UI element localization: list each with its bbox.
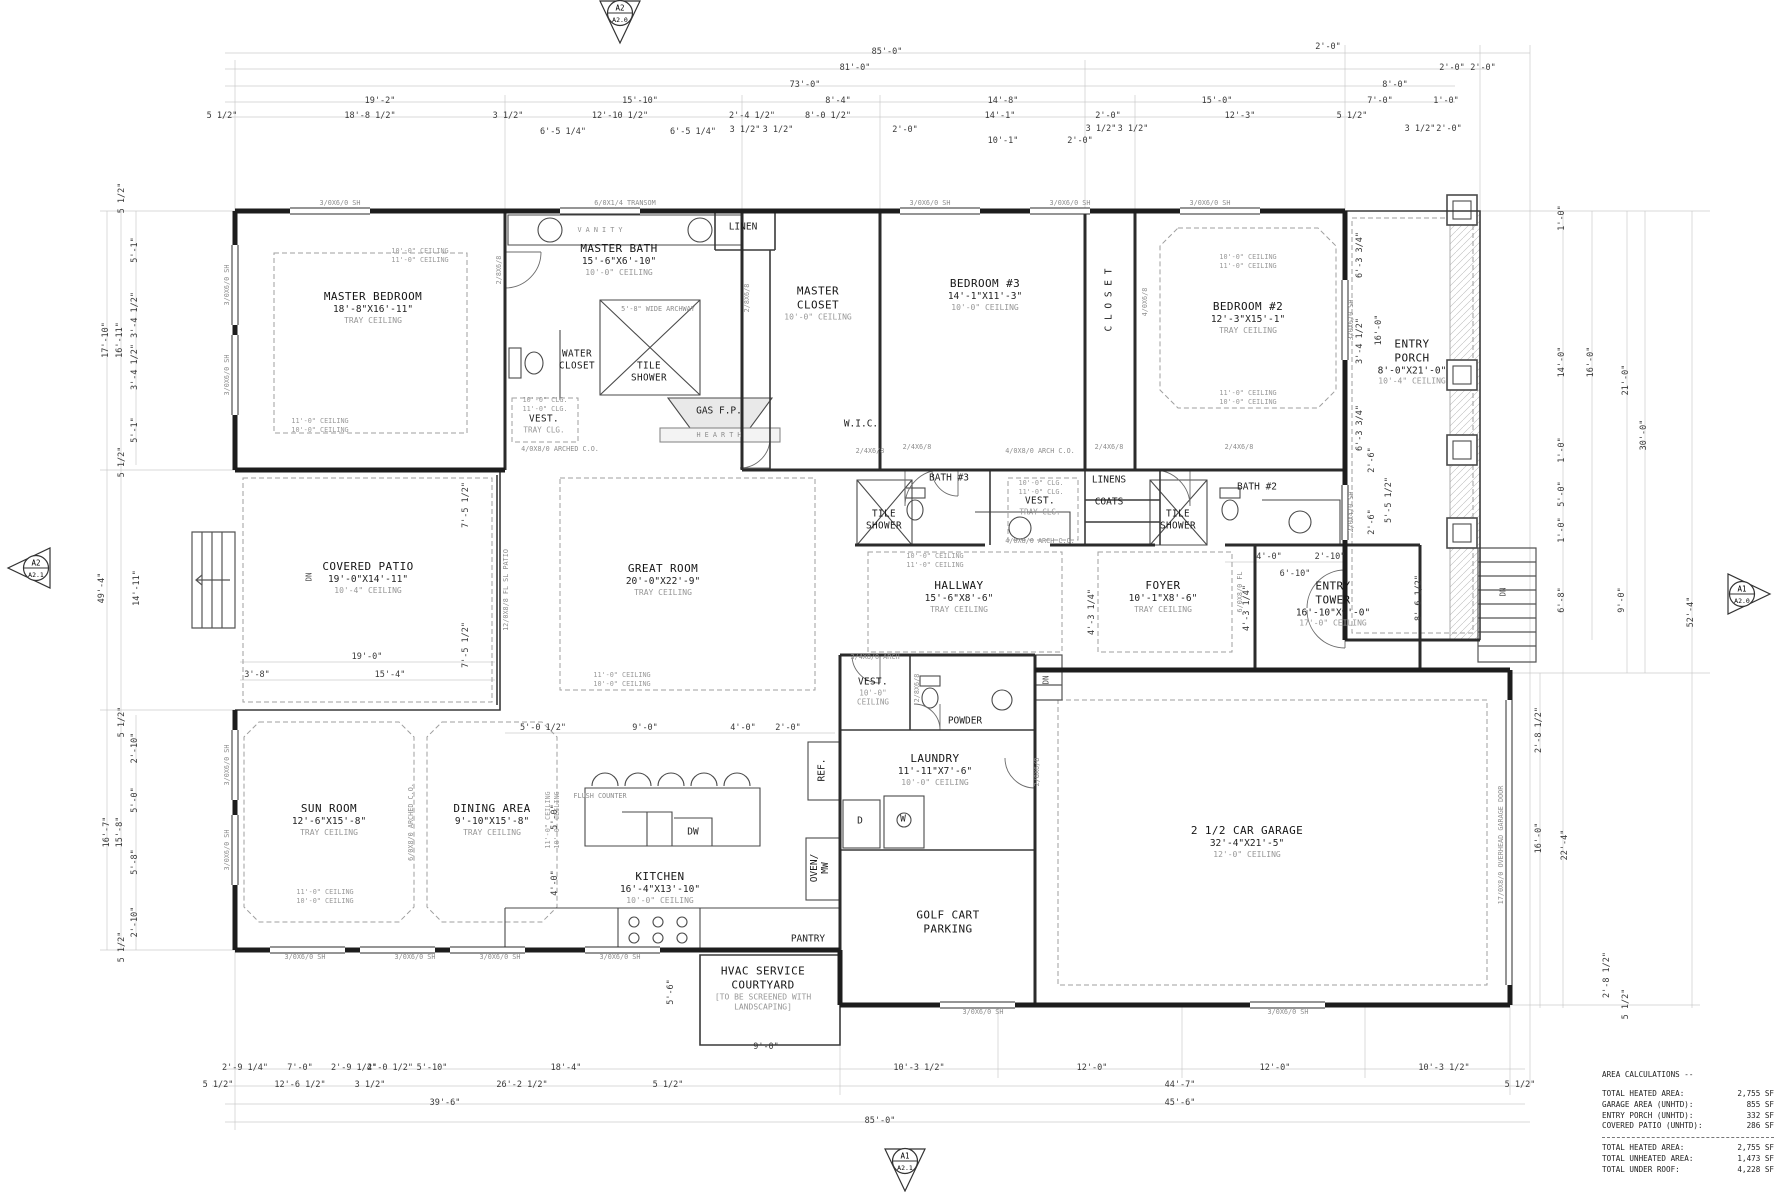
area-table-row-value: 4,228 SF bbox=[1737, 1165, 1774, 1176]
dimension-label: 2'-8 1/2" bbox=[1535, 707, 1545, 753]
window-door-annotation: 2/4X6/8 bbox=[903, 444, 932, 452]
room-label: ENTRYTOWER16'-10"X9'-0"17'-0" CEILING bbox=[1296, 579, 1370, 628]
dimension-label: 2'-0 1/2" bbox=[367, 1064, 413, 1074]
dimension-label: 8'-4" bbox=[825, 97, 851, 107]
dimension-label: 2'-4 1/2" bbox=[729, 112, 775, 122]
room-label: MASTER BEDROOM18'-8"X16'-11"TRAY CEILING bbox=[324, 290, 422, 326]
plan-label: H E A R T H bbox=[696, 432, 741, 440]
ceiling-height-note: 10'-0" CLG. 11'-0" CLG. bbox=[522, 396, 567, 414]
window-door-annotation: 17/0X8/0 OVERHEAD GARAGE DOOR bbox=[1498, 786, 1506, 905]
area-table-group2: TOTAL HEATED AREA:2,755 SFTOTAL UNHEATED… bbox=[1602, 1143, 1774, 1175]
dimension-label: 5 1/2" bbox=[118, 707, 128, 738]
dimension-label: 8'-0 1/2" bbox=[805, 112, 851, 122]
plan-label: FLUSH COUNTER bbox=[573, 793, 626, 801]
dimension-label: 12'-3" bbox=[1225, 112, 1256, 122]
area-table-row-label: TOTAL HEATED AREA: bbox=[1602, 1089, 1684, 1100]
window-door-annotation: 3/0X6/0 SH bbox=[963, 1009, 1004, 1017]
dimension-label: 81'-0" bbox=[840, 64, 871, 74]
dimension-label: 18'-8 1/2" bbox=[344, 112, 395, 122]
dimension-label: 4'-3 1/4" bbox=[1088, 589, 1098, 635]
dimension-label: 3 1/2" bbox=[355, 1081, 386, 1091]
plan-label: C L O S E T bbox=[1105, 269, 1116, 332]
plan-label: BATH #2 bbox=[1237, 483, 1277, 494]
area-table-row-label: COVERED PATIO (UNHTD): bbox=[1602, 1121, 1703, 1132]
dimension-label: 2'-6" bbox=[1368, 447, 1378, 473]
window-door-annotation: 2/8X6/8 bbox=[914, 674, 922, 703]
sheet-reference-marker: A2A2.1 bbox=[5, 542, 55, 598]
dimension-label: 12'-0" bbox=[1260, 1064, 1291, 1074]
window-door-annotation: 3/0X6/0 SH bbox=[224, 355, 232, 396]
ceiling-height-note: 10'-0" CEILING 11'-0" CEILING bbox=[1219, 253, 1276, 271]
plan-label: COATS bbox=[1095, 498, 1124, 509]
dimension-label: 2'-0" bbox=[1095, 112, 1121, 122]
dimension-label: 8'-0" bbox=[1382, 81, 1408, 91]
window-door-annotation: 3/0X6/0 SH bbox=[1348, 300, 1356, 341]
dimension-label: 19'-2" bbox=[365, 97, 396, 107]
plan-label: BATH #3 bbox=[929, 474, 969, 485]
dimension-label: 3'-4 1/2" bbox=[131, 292, 141, 338]
dimension-label: 85'-0" bbox=[872, 48, 903, 58]
room-label: TILESHOWER bbox=[631, 360, 667, 383]
dimension-label: 19'-0" bbox=[352, 653, 383, 663]
room-label: 2 1/2 CAR GARAGE32'-4"X21'-5"12'-0" CEIL… bbox=[1191, 824, 1303, 860]
dimension-label: 10'-1" bbox=[988, 137, 1019, 147]
porch-hatch-band bbox=[1450, 211, 1480, 640]
dimension-label: 5'-0" bbox=[1558, 481, 1568, 507]
dimension-label: 30'-0" bbox=[1640, 420, 1650, 451]
dimension-label: 9'-0" bbox=[632, 724, 658, 734]
svg-text:A2.1: A2.1 bbox=[28, 571, 44, 579]
svg-text:A1: A1 bbox=[900, 1152, 909, 1161]
dimension-label: 5'-5 1/2" bbox=[1385, 477, 1395, 523]
dimension-label: 1'-0" bbox=[1433, 97, 1459, 107]
dimension-label: 12'-0" bbox=[1077, 1064, 1108, 1074]
dimension-label: 85'-0" bbox=[865, 1117, 896, 1127]
area-table-row-label: GARAGE AREA (UNHTD): bbox=[1602, 1100, 1693, 1111]
dimension-label: 2'-8 1/2" bbox=[1603, 952, 1613, 998]
window-door-annotation: 3/0X6/0 SH bbox=[600, 954, 641, 962]
plan-label: D bbox=[857, 817, 863, 828]
room-label: VEST.TRAY CLG. bbox=[523, 413, 564, 434]
area-table-row-value: 855 SF bbox=[1747, 1100, 1774, 1111]
area-table-row: TOTAL UNDER ROOF:4,228 SF bbox=[1602, 1165, 1774, 1176]
room-label: VEST.TRAY CLG. bbox=[1019, 495, 1060, 516]
plan-label: POWDER bbox=[948, 717, 982, 728]
window-door-annotation: 2/4X6/8 bbox=[1225, 444, 1254, 452]
window-door-annotation: 3/0X6/0 SH bbox=[320, 200, 361, 208]
dimension-label: 2'-0" bbox=[1436, 125, 1462, 135]
area-table-row-label: ENTRY PORCH (UNHTD): bbox=[1602, 1111, 1693, 1122]
dimension-label: 2'-0" bbox=[1439, 64, 1465, 74]
ceiling-height-note: 10'-0" CLG. 11'-0" CLG. bbox=[1018, 479, 1063, 497]
dimension-label: 8'-6 1/2" bbox=[1415, 575, 1425, 621]
dimension-label: 3'-4 1/2" bbox=[1356, 318, 1366, 364]
plan-label: DN bbox=[306, 572, 315, 581]
window-door-annotation: 4/0X8/0 ARCH C.O. bbox=[1005, 538, 1075, 546]
plan-label: OVEN/ MW bbox=[810, 854, 832, 883]
dimension-label: 16'-11" bbox=[116, 322, 126, 358]
dimension-label: 1'-0" bbox=[1558, 517, 1568, 543]
room-label: BEDROOM #314'-1"X11'-3"10'-0" CEILING bbox=[948, 277, 1022, 313]
dimension-label: 7'-5 1/2" bbox=[462, 622, 472, 668]
dimension-label: 3 1/2" bbox=[730, 126, 761, 136]
plan-label: GAS F.P. bbox=[696, 407, 742, 418]
window-door-annotation: 3/0X6/0 SH bbox=[1268, 1009, 1309, 1017]
dimension-label: 2'-10" bbox=[1315, 553, 1346, 563]
window-door-annotation: 4/0X8/0 ARCH C.O. bbox=[1005, 448, 1075, 456]
dimension-label: 1'-0" bbox=[1558, 205, 1568, 231]
dimension-label: 10'-3 1/2" bbox=[1418, 1064, 1469, 1074]
room-label: HALLWAY15'-6"X8'-6"TRAY CEILING bbox=[925, 579, 994, 615]
dimension-label: 17'-10" bbox=[102, 322, 112, 358]
dimension-label: 6'-5 1/4" bbox=[670, 128, 716, 138]
room-label: VEST.10'-0"CEILING bbox=[857, 677, 889, 708]
area-table-group1: TOTAL HEATED AREA:2,755 SFGARAGE AREA (U… bbox=[1602, 1089, 1774, 1132]
dimension-label: 2'-0" bbox=[1315, 43, 1341, 53]
dimension-label: 6'-3 3/4" bbox=[1356, 232, 1366, 278]
dimension-label: 6'-8" bbox=[1558, 587, 1568, 613]
area-table-row-value: 332 SF bbox=[1747, 1111, 1774, 1122]
area-table-row-value: 1,473 SF bbox=[1737, 1154, 1774, 1165]
svg-text:A2.0: A2.0 bbox=[612, 16, 628, 24]
dimension-label: 5'-0" bbox=[131, 787, 141, 813]
dimension-label: 73'-0" bbox=[790, 81, 821, 91]
plan-label: LINEN bbox=[729, 223, 758, 234]
plan-label: REF. bbox=[818, 759, 829, 782]
dimension-label: 2'-6" bbox=[1368, 509, 1378, 535]
room-label: KITCHEN16'-4"X13'-10"10'-0" CEILING bbox=[620, 870, 700, 906]
dimension-label: 5 1/2" bbox=[207, 112, 238, 122]
plan-label: PANTRY bbox=[791, 935, 825, 946]
plan-label: DW bbox=[687, 828, 698, 839]
dimension-label: 44'-7" bbox=[1165, 1081, 1196, 1091]
area-table-row: TOTAL HEATED AREA:2,755 SF bbox=[1602, 1143, 1774, 1154]
dimension-label: 3 1/2" bbox=[1118, 125, 1149, 135]
room-label: TILESHOWER bbox=[866, 508, 902, 531]
dimension-label: 14'-8" bbox=[988, 97, 1019, 107]
dimension-label: 16'-7" bbox=[103, 817, 113, 848]
dimension-label: 22'-4" bbox=[1561, 830, 1571, 861]
dimension-label: 3 1/2" bbox=[1086, 125, 1117, 135]
window-door-annotation: 6/0X1/4 TRANSOM bbox=[594, 200, 655, 208]
room-label: BEDROOM #212'-3"X15'-1"TRAY CEILING bbox=[1211, 300, 1285, 336]
dimension-label: 2'-0" bbox=[892, 126, 918, 136]
window-door-annotation: 3/0X6/0 SH bbox=[224, 265, 232, 306]
dimension-label: 2'-10" bbox=[131, 733, 141, 764]
dimension-label: 16'-0" bbox=[1587, 347, 1597, 378]
window-door-annotation: 2/0X4/0 SH bbox=[1348, 492, 1356, 533]
dimension-label: 5'-0 1/2" bbox=[520, 724, 566, 734]
dimension-label: 45'-6" bbox=[1165, 1099, 1196, 1109]
area-table-row: COVERED PATIO (UNHTD):286 SF bbox=[1602, 1121, 1774, 1132]
room-label: GREAT ROOM20'-0"X22'-9"TRAY CEILING bbox=[626, 562, 700, 598]
dimension-label: 15'-4" bbox=[375, 671, 406, 681]
dimension-label: 5'-1" bbox=[131, 417, 141, 443]
dimension-label: 7'-5 1/2" bbox=[462, 482, 472, 528]
window-door-annotation: 3/0X6/0 SH bbox=[224, 745, 232, 786]
area-table-divider bbox=[1602, 1137, 1774, 1138]
dimension-label: 15'-0" bbox=[1202, 97, 1233, 107]
ceiling-height-note: 11'-0" CEILING 10'-0" CEILING bbox=[1219, 389, 1276, 407]
ceiling-height-note: 11'-0" CEILING 10'-0" CEILING bbox=[291, 417, 348, 435]
room-label: MASTER BATH15'-6"X6'-10"10'-0" CEILING bbox=[580, 242, 657, 278]
plan-label: W bbox=[900, 815, 906, 826]
dimension-label: 7'-0" bbox=[1367, 97, 1393, 107]
dimension-label: 5'-6" bbox=[667, 979, 677, 1005]
sheet-reference-marker: A2A2.0 bbox=[595, 0, 645, 52]
area-table-row: TOTAL UNHEATED AREA:1,473 SF bbox=[1602, 1154, 1774, 1165]
dimension-label: 12'-6 1/2" bbox=[274, 1081, 325, 1091]
dimension-label: 2'-10" bbox=[131, 907, 141, 938]
svg-text:A2.1: A2.1 bbox=[897, 1164, 913, 1172]
dimension-label: 5 1/2" bbox=[1622, 989, 1632, 1020]
walls-thin bbox=[235, 211, 1480, 1045]
dimension-label: 3 1/2" bbox=[493, 112, 524, 122]
svg-text:A2.0: A2.0 bbox=[1734, 597, 1750, 605]
area-table-row-label: TOTAL HEATED AREA: bbox=[1602, 1143, 1684, 1154]
sheet-reference-marker: A1A2.0 bbox=[1723, 568, 1773, 624]
dimension-label: 5 1/2" bbox=[653, 1081, 684, 1091]
dimension-label: 49'-4" bbox=[98, 573, 108, 604]
dimension-label: 4'-0" bbox=[551, 870, 561, 896]
area-table-row: TOTAL HEATED AREA:2,755 SF bbox=[1602, 1089, 1774, 1100]
dimension-label: 52'-4" bbox=[1687, 597, 1697, 628]
window-door-annotation: 3/0X6/0 SH bbox=[395, 954, 436, 962]
dimension-label: 10'-3 1/2" bbox=[893, 1064, 944, 1074]
floor-plan-drawing bbox=[0, 0, 1777, 1192]
dimension-label: 4'-0" bbox=[730, 724, 756, 734]
ceiling-height-note: 11'-0" CEILING 10'-0" CEILING bbox=[296, 888, 353, 906]
window-door-annotation: 2/4X6/8 bbox=[1095, 444, 1124, 452]
dimension-label: 2'-9 1/4" bbox=[222, 1064, 268, 1074]
dimension-label: 3 1/2" bbox=[763, 126, 794, 136]
window-door-annotation: 4/0X8/0 ARCHED C.O. bbox=[521, 446, 599, 454]
dimension-label: 15'-10" bbox=[622, 97, 658, 107]
dimension-label: 6'-3 3/4" bbox=[1356, 405, 1366, 451]
window-door-annotation: 3/4X8/0 ARCH bbox=[850, 654, 899, 662]
dimension-label: 2'-0" bbox=[775, 724, 801, 734]
dimension-label: 5'-10" bbox=[417, 1064, 448, 1074]
window-door-annotation: 6/0X8/0 FL bbox=[1237, 572, 1245, 613]
area-table-row-label: TOTAL UNDER ROOF: bbox=[1602, 1165, 1680, 1176]
window-door-annotation: 2/8X6/8 bbox=[1034, 758, 1042, 787]
svg-text:A1: A1 bbox=[1737, 585, 1746, 594]
dimension-label: 3 1/2" bbox=[1405, 125, 1436, 135]
dimension-label: 12'-10 1/2" bbox=[592, 112, 648, 122]
room-label: HVAC SERVICECOURTYARD[TO BE SCREENED WIT… bbox=[715, 964, 811, 1012]
plan-label: W.I.C. bbox=[844, 420, 878, 431]
window-door-annotation: 3/0X6/0 SH bbox=[224, 830, 232, 871]
dimension-label: 2'-0" bbox=[1067, 137, 1093, 147]
dimension-label: 16'-0" bbox=[1535, 823, 1545, 854]
window-door-annotation: 3/0X6/0 SH bbox=[910, 200, 951, 208]
plan-label: LINENS bbox=[1092, 476, 1126, 487]
dimension-label: 14'-1" bbox=[985, 112, 1016, 122]
window-door-annotation: 12/0X8/8 FL SL PATIO bbox=[503, 549, 511, 631]
dimension-label: 5'-8" bbox=[131, 849, 141, 875]
svg-text:A2: A2 bbox=[615, 4, 624, 13]
dimension-label: 3'-4 1/2" bbox=[131, 344, 141, 390]
window-door-annotation: 3/0X6/0 SH bbox=[480, 954, 521, 962]
room-label: WATERCLOSET bbox=[559, 348, 595, 371]
room-label: LAUNDRY11'-11"X7'-6"10'-0" CEILING bbox=[898, 752, 972, 788]
dimension-label: 5 1/2" bbox=[118, 183, 128, 214]
plan-label: DN bbox=[1500, 587, 1509, 596]
dimension-label: 5'-1" bbox=[131, 237, 141, 263]
dimension-label: 5 1/2" bbox=[1337, 112, 1368, 122]
window-door-annotation: 4/0X6/8 bbox=[1142, 288, 1150, 317]
dimension-label: 9'-0" bbox=[753, 1043, 779, 1053]
dimension-label: 39'-6" bbox=[430, 1099, 461, 1109]
ceiling-height-note: 11'-0" CEILING 10'-0" CEILING bbox=[593, 671, 650, 689]
area-table-row-value: 2,755 SF bbox=[1737, 1089, 1774, 1100]
dimension-label: 6'-5 1/4" bbox=[540, 128, 586, 138]
dimension-label: 21'-0" bbox=[1622, 365, 1632, 396]
window-door-annotation: 3/0X6/0 SH bbox=[285, 954, 326, 962]
area-table-row: ENTRY PORCH (UNHTD):332 SF bbox=[1602, 1111, 1774, 1122]
dimension-label: 5 1/2" bbox=[1505, 1081, 1536, 1091]
dimension-label: 14'-11" bbox=[133, 570, 143, 606]
sheet-reference-marker: A1A2.1 bbox=[880, 1144, 930, 1192]
dimension-label: 2'-0" bbox=[1470, 64, 1496, 74]
dimension-label: 1'-0" bbox=[1558, 437, 1568, 463]
room-label: DINING AREA9'-10"X15'-8"TRAY CEILING bbox=[453, 802, 530, 838]
room-label: GOLF CARTPARKING bbox=[916, 908, 979, 936]
dimension-label: 4'-0" bbox=[1256, 553, 1282, 563]
ceiling-height-note: 11'-0" CEILING 10'-0" CEILING bbox=[544, 791, 562, 848]
dimension-label: 5 1/2" bbox=[118, 447, 128, 478]
area-table-row-value: 2,755 SF bbox=[1737, 1143, 1774, 1154]
window-door-annotation: 3/0X6/0 SH bbox=[1050, 200, 1091, 208]
area-table-row: GARAGE AREA (UNHTD):855 SF bbox=[1602, 1100, 1774, 1111]
window-door-annotation: 2/4X6/8 bbox=[856, 448, 885, 456]
window-door-annotation: 5'-8" WIDE ARCHWAY bbox=[621, 306, 695, 314]
room-label: MASTERCLOSET10'-0" CEILING bbox=[784, 284, 851, 322]
dimension-label: 3'-8" bbox=[244, 671, 270, 681]
window-door-annotation: 3/0X6/0 SH bbox=[1190, 200, 1231, 208]
room-label: SUN ROOM12'-6"X15'-8"TRAY CEILING bbox=[292, 802, 366, 838]
room-label: ENTRYPORCH8'-0"X21'-0"10'-4" CEILING bbox=[1378, 337, 1447, 386]
area-table-row-label: TOTAL UNHEATED AREA: bbox=[1602, 1154, 1693, 1165]
dimension-label: 9'-0" bbox=[1618, 587, 1628, 613]
dimension-label: 15'-8" bbox=[116, 817, 126, 848]
room-label: TILESHOWER bbox=[1160, 508, 1196, 531]
window-door-annotation: 2/8X6/8 bbox=[496, 256, 504, 285]
dimension-label: 5 1/2" bbox=[203, 1081, 234, 1091]
plan-label: V A N I T Y bbox=[577, 227, 622, 235]
svg-text:A2: A2 bbox=[31, 559, 40, 568]
floor-plan-sheet: 85'-0"81'-0"73'-0"19'-2"15'-10"8'-4"14'-… bbox=[0, 0, 1777, 1192]
dimension-label: 14'-0" bbox=[1558, 347, 1568, 378]
dimension-label: 26'-2 1/2" bbox=[496, 1081, 547, 1091]
room-label: COVERED PATIO19'-0"X14'-11"10'-4" CEILIN… bbox=[322, 560, 413, 596]
dimension-label: 5 1/2" bbox=[118, 932, 128, 963]
area-calculations-table: AREA CALCULATIONS -- TOTAL HEATED AREA:2… bbox=[1602, 1070, 1774, 1175]
ceiling-height-note: 10'-0" CEILING 11'-0" CEILING bbox=[391, 247, 448, 265]
window-door-annotation: 6/0X8/0 ARCHED C.O. bbox=[408, 783, 416, 861]
room-label: FOYER10'-1"X8'-6"TRAY CEILING bbox=[1129, 579, 1198, 615]
dimension-label: 7'-0" bbox=[287, 1064, 313, 1074]
window-door-annotation: 2/8X6/8 bbox=[744, 284, 752, 313]
area-calculations-header: AREA CALCULATIONS -- bbox=[1602, 1070, 1774, 1079]
plan-label: DN bbox=[1043, 675, 1052, 684]
dimension-label: 18'-4" bbox=[551, 1064, 582, 1074]
ceiling-height-note: 10'-0" CEILING 11'-0" CEILING bbox=[906, 552, 963, 570]
area-table-row-value: 286 SF bbox=[1747, 1121, 1774, 1132]
